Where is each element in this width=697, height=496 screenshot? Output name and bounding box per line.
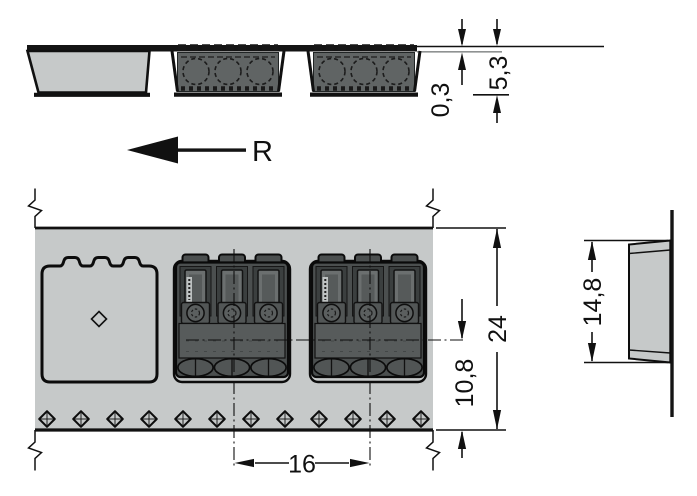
dimension-pocket-pitch: 16 — [235, 451, 370, 479]
arrowhead-down — [588, 343, 596, 362]
dim-label-tape-width: 24 — [484, 315, 512, 343]
arrowhead-down — [458, 321, 466, 340]
arrowhead-down — [493, 410, 501, 430]
tape-plan-view: 24 10,8 16 — [29, 189, 512, 479]
dim-label-centerline-to-edge: 10,8 — [451, 359, 479, 408]
arrowhead-up — [493, 95, 501, 113]
break-line — [29, 189, 42, 229]
direction-label: R — [252, 136, 273, 168]
empty-pocket — [42, 258, 157, 383]
dimension-tape-thickness: 0,3 — [427, 19, 466, 117]
smd-component-1 — [174, 255, 290, 383]
dimension-centerline-to-edge: 10,8 — [451, 299, 479, 458]
dim-label-pocket-depth: 5,3 — [485, 56, 513, 91]
filled-pocket-side-2 — [308, 48, 420, 95]
arrowhead-up — [458, 431, 466, 450]
break-line — [427, 189, 440, 229]
arrowhead-down — [458, 29, 466, 47]
empty-pocket-side — [28, 51, 150, 93]
unreeling-direction-arrow: R — [127, 136, 273, 168]
filled-pocket-side-1 — [172, 48, 284, 95]
dim-label-tape-thickness: 0,3 — [427, 83, 455, 118]
tape-end-view: 14,8 — [579, 210, 674, 417]
arrowhead-left — [235, 459, 255, 467]
arrowhead-up — [588, 241, 596, 260]
arrowhead-down — [493, 29, 501, 46]
direction-arrowhead — [127, 137, 178, 164]
arrowhead-up — [458, 53, 466, 71]
break-line — [29, 430, 42, 471]
tape-side-view: 0,3 5,3 — [27, 19, 604, 123]
smd-component-2 — [310, 255, 426, 383]
dim-label-pocket-height: 14,8 — [579, 278, 607, 327]
arrowhead-right — [350, 459, 370, 467]
tape-and-reel-drawing: 0,3 5,3 R — [0, 0, 697, 496]
pocket-end-profile — [629, 241, 670, 363]
break-line — [427, 430, 440, 471]
arrowhead-up — [493, 229, 501, 249]
dimension-pocket-depth: 5,3 — [473, 19, 513, 123]
dim-label-pocket-pitch: 16 — [288, 451, 316, 479]
